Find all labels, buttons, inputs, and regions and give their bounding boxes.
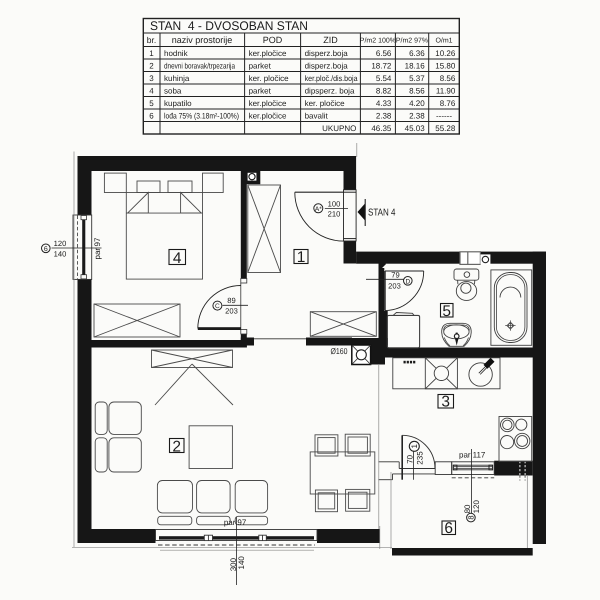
svg-text:6.36: 6.36 xyxy=(409,49,425,58)
svg-text:140: 140 xyxy=(237,556,246,570)
svg-text:ker.pločice: ker.pločice xyxy=(249,49,287,58)
svg-text:6: 6 xyxy=(149,111,154,120)
svg-text:15.80: 15.80 xyxy=(435,61,456,70)
svg-text:210: 210 xyxy=(328,210,341,219)
svg-text:1: 1 xyxy=(297,249,306,266)
svg-text:STAN 4: STAN 4 xyxy=(368,208,396,219)
svg-text:P/m2 97%: P/m2 97% xyxy=(396,37,428,45)
svg-text:100: 100 xyxy=(328,199,341,208)
svg-text:STAN 4 - DVOSOBAN STAN: STAN 4 - DVOSOBAN STAN xyxy=(150,19,308,33)
svg-text:203: 203 xyxy=(388,281,401,290)
svg-text:par: par xyxy=(459,451,471,460)
svg-text:Ø160: Ø160 xyxy=(331,346,348,356)
svg-text:6: 6 xyxy=(44,246,48,253)
svg-text:8.56: 8.56 xyxy=(440,74,456,83)
svg-text:8.76: 8.76 xyxy=(440,99,456,108)
svg-text:disperz.boja: disperz.boja xyxy=(305,61,349,70)
svg-text:naziv prostorije: naziv prostorije xyxy=(172,35,233,45)
svg-text:UKUPNO: UKUPNO xyxy=(322,124,356,133)
svg-text:97: 97 xyxy=(237,518,246,527)
svg-text:120: 120 xyxy=(54,239,67,248)
svg-text:bavalit: bavalit xyxy=(305,111,329,120)
svg-text:8.82: 8.82 xyxy=(376,86,392,95)
svg-text:8: 8 xyxy=(466,516,475,520)
svg-text:2.38: 2.38 xyxy=(376,111,392,120)
svg-text:45.03: 45.03 xyxy=(405,124,426,133)
svg-text:3: 3 xyxy=(149,74,154,83)
svg-text:97: 97 xyxy=(93,237,102,246)
svg-text:par: par xyxy=(224,518,236,527)
svg-text:dipsperz. boja: dipsperz. boja xyxy=(305,86,355,95)
svg-text:5.37: 5.37 xyxy=(409,74,425,83)
svg-text:ker. pločice: ker. pločice xyxy=(305,99,346,108)
svg-text:P/m2 100%: P/m2 100% xyxy=(360,37,396,45)
svg-text:10.26: 10.26 xyxy=(435,49,456,58)
svg-text:18.72: 18.72 xyxy=(371,61,392,70)
svg-text:4: 4 xyxy=(149,86,154,95)
svg-text:kuhinja: kuhinja xyxy=(164,74,190,83)
svg-text:4: 4 xyxy=(173,250,182,267)
svg-text:18.16: 18.16 xyxy=(405,61,426,70)
svg-text:ker.pločice: ker.pločice xyxy=(249,99,287,108)
svg-text:55.28: 55.28 xyxy=(435,124,456,133)
svg-text:------: ------ xyxy=(436,111,452,120)
svg-text:ker.ploč./dis.boja: ker.ploč./dis.boja xyxy=(305,74,358,83)
svg-text:117: 117 xyxy=(473,451,486,460)
svg-text:235: 235 xyxy=(415,451,424,465)
svg-text:6: 6 xyxy=(444,520,453,537)
svg-text:3: 3 xyxy=(441,394,450,411)
svg-text:ker.pločice: ker.pločice xyxy=(249,111,287,120)
svg-text:2.38: 2.38 xyxy=(409,111,425,120)
svg-text:2: 2 xyxy=(149,61,154,70)
svg-text:2: 2 xyxy=(172,439,181,456)
svg-text:70: 70 xyxy=(406,454,415,463)
svg-text:46.35: 46.35 xyxy=(371,124,392,133)
svg-text:ZID: ZID xyxy=(323,35,338,45)
svg-text:89: 89 xyxy=(227,296,235,305)
svg-text:kupatilo: kupatilo xyxy=(164,99,192,108)
svg-text:parket: parket xyxy=(249,61,272,70)
svg-text:1: 1 xyxy=(149,49,154,58)
svg-text:O/m1: O/m1 xyxy=(435,37,452,45)
svg-text:120: 120 xyxy=(472,500,481,514)
svg-text:5: 5 xyxy=(149,99,154,108)
svg-text:par: par xyxy=(93,248,102,260)
svg-text:1: 1 xyxy=(410,444,419,449)
svg-text:5.54: 5.54 xyxy=(376,74,392,83)
svg-text:dnevni boravak/trpezarija: dnevni boravak/trpezarija xyxy=(164,61,235,70)
svg-text:lođa 75% (3.18m²-100%): lođa 75% (3.18m²-100%) xyxy=(164,111,239,120)
svg-text:D: D xyxy=(405,278,410,285)
svg-text:140: 140 xyxy=(54,249,67,258)
svg-text:POD: POD xyxy=(263,35,283,45)
svg-text:ker. pločice: ker. pločice xyxy=(249,74,290,83)
svg-text:hodnik: hodnik xyxy=(164,49,189,58)
svg-text:disperz.boja: disperz.boja xyxy=(305,49,349,58)
svg-text:br.: br. xyxy=(147,35,156,45)
svg-text:4.33: 4.33 xyxy=(376,99,392,108)
svg-text:79: 79 xyxy=(391,271,399,280)
svg-text:soba: soba xyxy=(164,86,182,95)
svg-text:203: 203 xyxy=(225,307,238,316)
svg-text:8.56: 8.56 xyxy=(409,86,425,95)
svg-text:parket: parket xyxy=(249,86,272,95)
svg-text:80: 80 xyxy=(463,504,472,513)
svg-text:4.20: 4.20 xyxy=(409,99,425,108)
svg-text:6.56: 6.56 xyxy=(376,49,392,58)
svg-text:11.90: 11.90 xyxy=(436,86,456,95)
svg-text:A*: A* xyxy=(315,206,322,213)
svg-text:5: 5 xyxy=(442,303,451,320)
svg-text:C: C xyxy=(215,303,220,310)
